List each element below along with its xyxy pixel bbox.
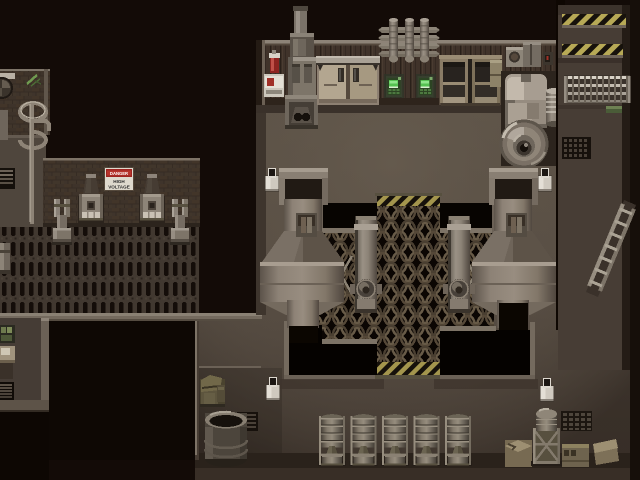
svg-text:DANGER: DANGER	[110, 171, 128, 176]
svg-text:HIGH: HIGH	[113, 179, 125, 184]
svg-text:VOLTAGE: VOLTAGE	[108, 185, 130, 190]
